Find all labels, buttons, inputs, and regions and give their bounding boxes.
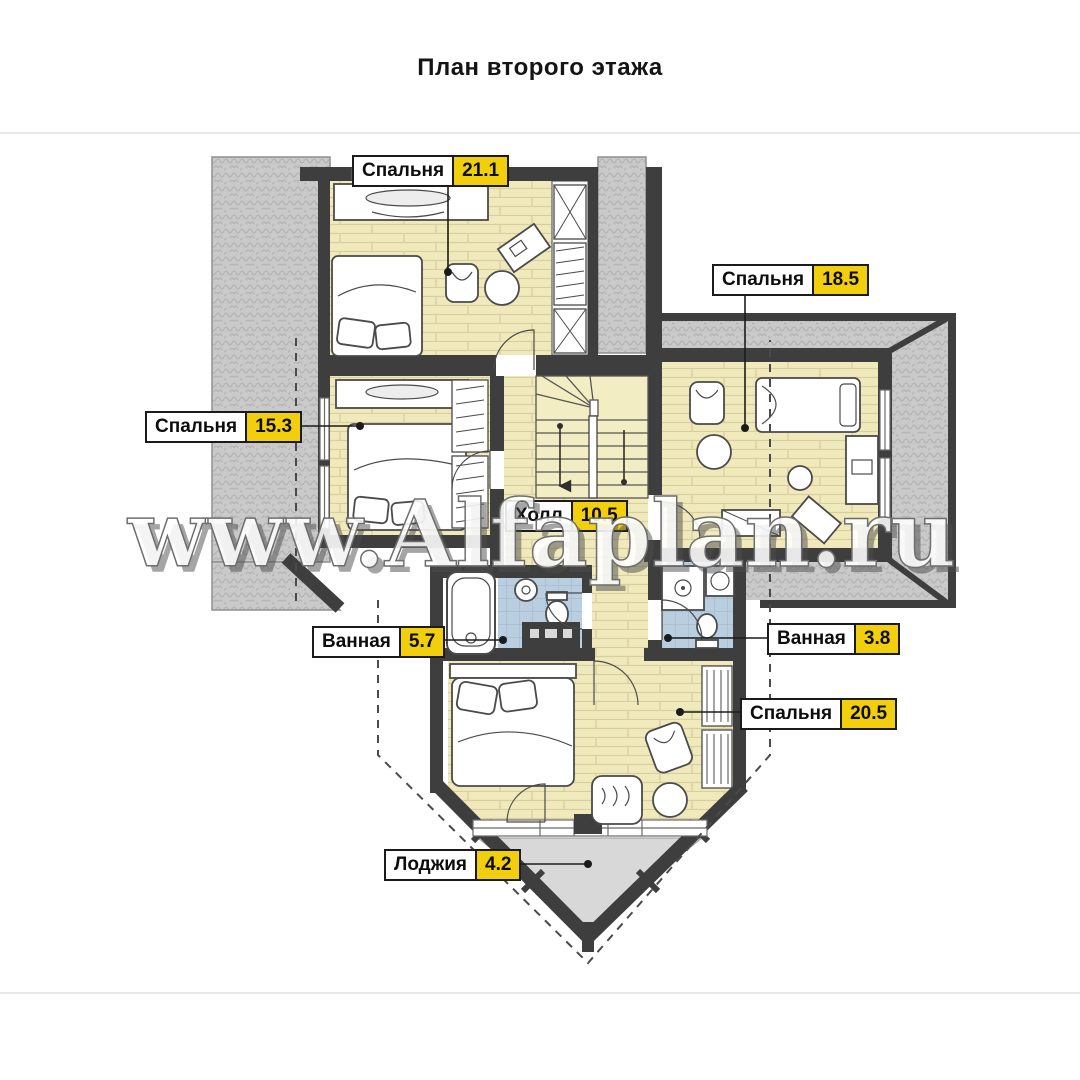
room-label-name: Холл [505, 500, 573, 532]
roof-top-strip [598, 157, 646, 353]
room-label-area: 15.3 [247, 411, 302, 443]
room-label-area: 18.5 [814, 264, 869, 296]
room-label-name: Спальня [145, 411, 247, 443]
roof-left-strip [212, 157, 330, 562]
furniture-bedroom-15-3 [336, 380, 490, 530]
room-label-name: Ванная [767, 623, 856, 655]
room-label-name: Спальня [740, 698, 842, 730]
room-label-area: 4.2 [477, 849, 521, 881]
corridor-floor [592, 578, 648, 661]
room-label-loggia: Лоджия4.2 [384, 849, 521, 881]
room-label-bedroom-18-5: Спальня18.5 [712, 264, 869, 296]
room-label-name: Лоджия [384, 849, 477, 881]
room-label-name: Ванная [312, 626, 401, 658]
room-label-name: Спальня [352, 155, 454, 187]
staircase [536, 376, 648, 498]
room-label-area: 10.5 [573, 500, 628, 532]
room-label-bedroom-20-5: Спальня20.5 [740, 698, 897, 730]
room-label-bath-3-8: Ванная3.8 [767, 623, 900, 655]
room-label-area: 21.1 [454, 155, 509, 187]
floor-plan-svg [0, 0, 1080, 1080]
room-label-area: 20.5 [842, 698, 897, 730]
floor-plan-page: План второго этажа [0, 0, 1080, 1080]
room-label-area: 3.8 [856, 623, 900, 655]
room-label-bath-5-7: Ванная5.7 [312, 626, 445, 658]
room-label-hall: Холл10.5 [505, 500, 628, 532]
room-label-bedroom-21-1: Спальня21.1 [352, 155, 509, 187]
room-label-area: 5.7 [401, 626, 445, 658]
room-label-name: Спальня [712, 264, 814, 296]
room-label-bedroom-15-3: Спальня15.3 [145, 411, 302, 443]
